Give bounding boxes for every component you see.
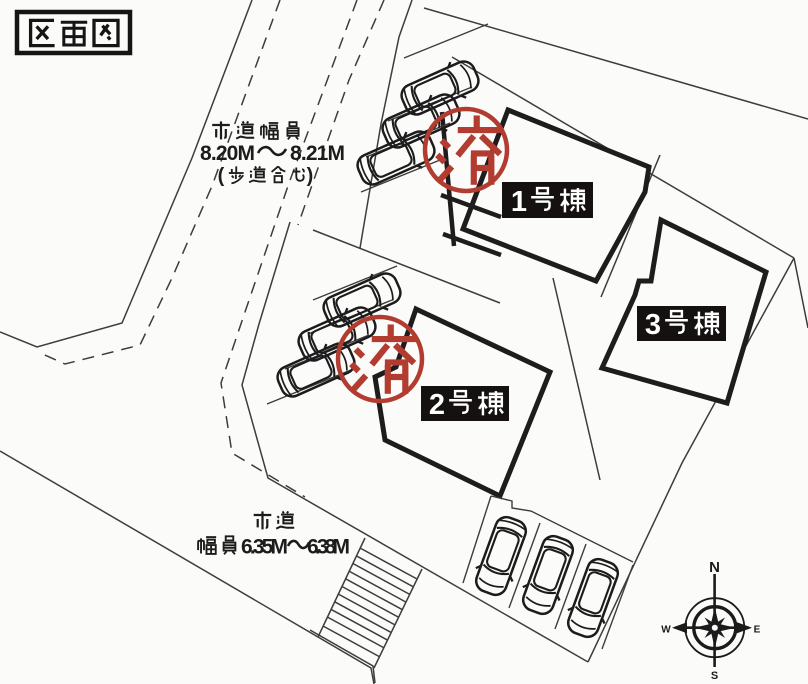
svg-text:S: S [711, 670, 718, 682]
svg-text:8.21M: 8.21M [290, 142, 345, 165]
svg-text:6.35M: 6.35M [241, 536, 288, 559]
svg-text:6.38M: 6.38M [307, 536, 350, 559]
svg-text:3: 3 [645, 309, 661, 341]
svg-text:E: E [754, 625, 761, 636]
svg-text:(: ( [218, 165, 225, 187]
svg-text:8.20M: 8.20M [200, 142, 255, 165]
svg-text:): ) [307, 165, 314, 187]
svg-text:1: 1 [511, 186, 527, 218]
svg-text:W: W [661, 625, 671, 636]
svg-text:2: 2 [429, 389, 445, 421]
svg-text:N: N [709, 559, 720, 576]
